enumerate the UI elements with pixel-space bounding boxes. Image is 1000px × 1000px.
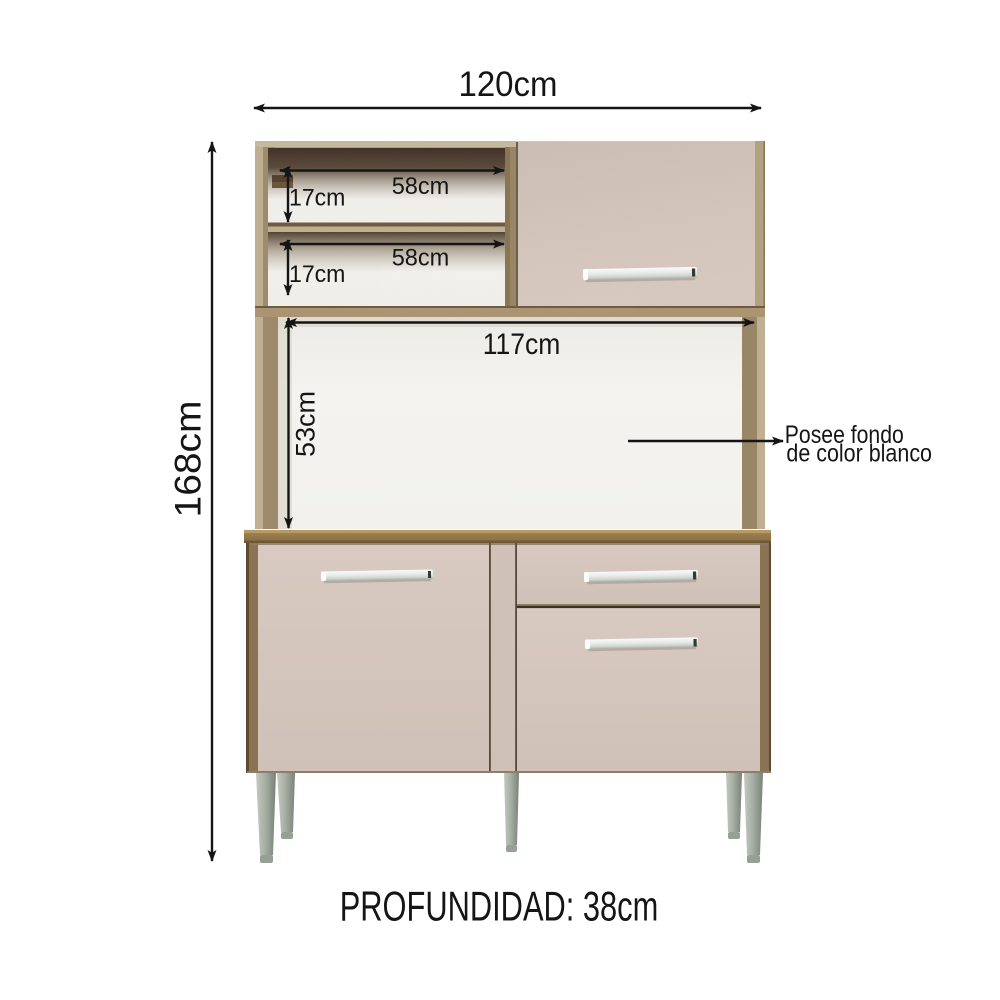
svg-text:53cm: 53cm [291, 391, 321, 457]
svg-text:117cm: 117cm [483, 328, 561, 361]
svg-text:17cm: 17cm [289, 261, 345, 288]
svg-text:PROFUNDIDAD: 38cm: PROFUNDIDAD: 38cm [340, 883, 659, 930]
svg-text:120cm: 120cm [459, 65, 558, 104]
svg-text:58cm: 58cm [392, 173, 450, 200]
svg-text:168cm: 168cm [168, 401, 209, 518]
svg-text:17cm: 17cm [289, 185, 345, 212]
svg-text:de color blanco: de color blanco [786, 440, 932, 468]
svg-text:58cm: 58cm [392, 245, 450, 272]
